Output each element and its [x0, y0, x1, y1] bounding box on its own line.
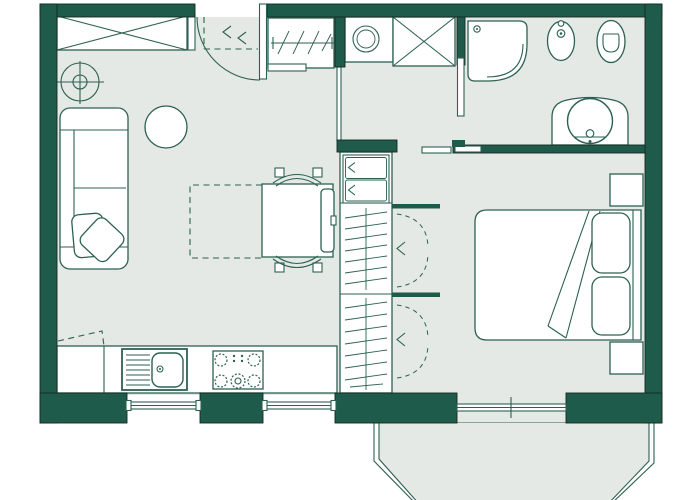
coat-rack-icon	[268, 18, 334, 71]
hallway-closet	[340, 152, 392, 393]
washbasin-icon	[552, 98, 628, 146]
wall-entry-partition	[335, 17, 345, 67]
nightstand-icon	[610, 174, 643, 206]
sofa-icon	[60, 108, 128, 269]
wall-left	[40, 4, 57, 423]
kitchen-counter	[57, 346, 337, 393]
floor-plan-canvas	[0, 0, 700, 500]
stove-icon	[213, 351, 263, 389]
washing-machine-icon	[345, 17, 393, 62]
nightstand-icon	[610, 342, 643, 374]
bidet-icon	[548, 21, 575, 61]
pillow	[592, 213, 630, 273]
double-bed-icon	[475, 210, 641, 340]
wall-closet-cap	[337, 140, 397, 152]
wall-right	[645, 4, 662, 423]
balcony	[374, 423, 654, 500]
pillow	[592, 277, 630, 335]
wall-bottom-2	[200, 393, 263, 423]
door-jamb	[188, 15, 195, 50]
wall-bottom-4	[566, 393, 662, 423]
side-table-icon	[145, 106, 187, 148]
floor-plan	[0, 0, 700, 500]
thin-partition	[337, 67, 341, 141]
kitchen-sink-icon	[122, 349, 187, 390]
storage-cabinet-icon	[393, 17, 455, 66]
wall-top-right	[267, 4, 662, 17]
wall-bottom-3	[335, 393, 457, 423]
door-handle	[452, 140, 465, 147]
wall-bathroom-south	[453, 145, 645, 153]
bathroom-side-door-leaf	[458, 58, 465, 116]
wardrobe-icon	[57, 15, 195, 50]
window-kitchen-left	[126, 401, 201, 411]
window-kitchen-right	[262, 401, 336, 411]
toilet-icon	[597, 21, 625, 63]
chair-icon	[321, 189, 336, 252]
wall-bottom-1	[40, 393, 127, 423]
balcony-floor	[379, 423, 649, 500]
wall-top-left	[40, 4, 195, 17]
